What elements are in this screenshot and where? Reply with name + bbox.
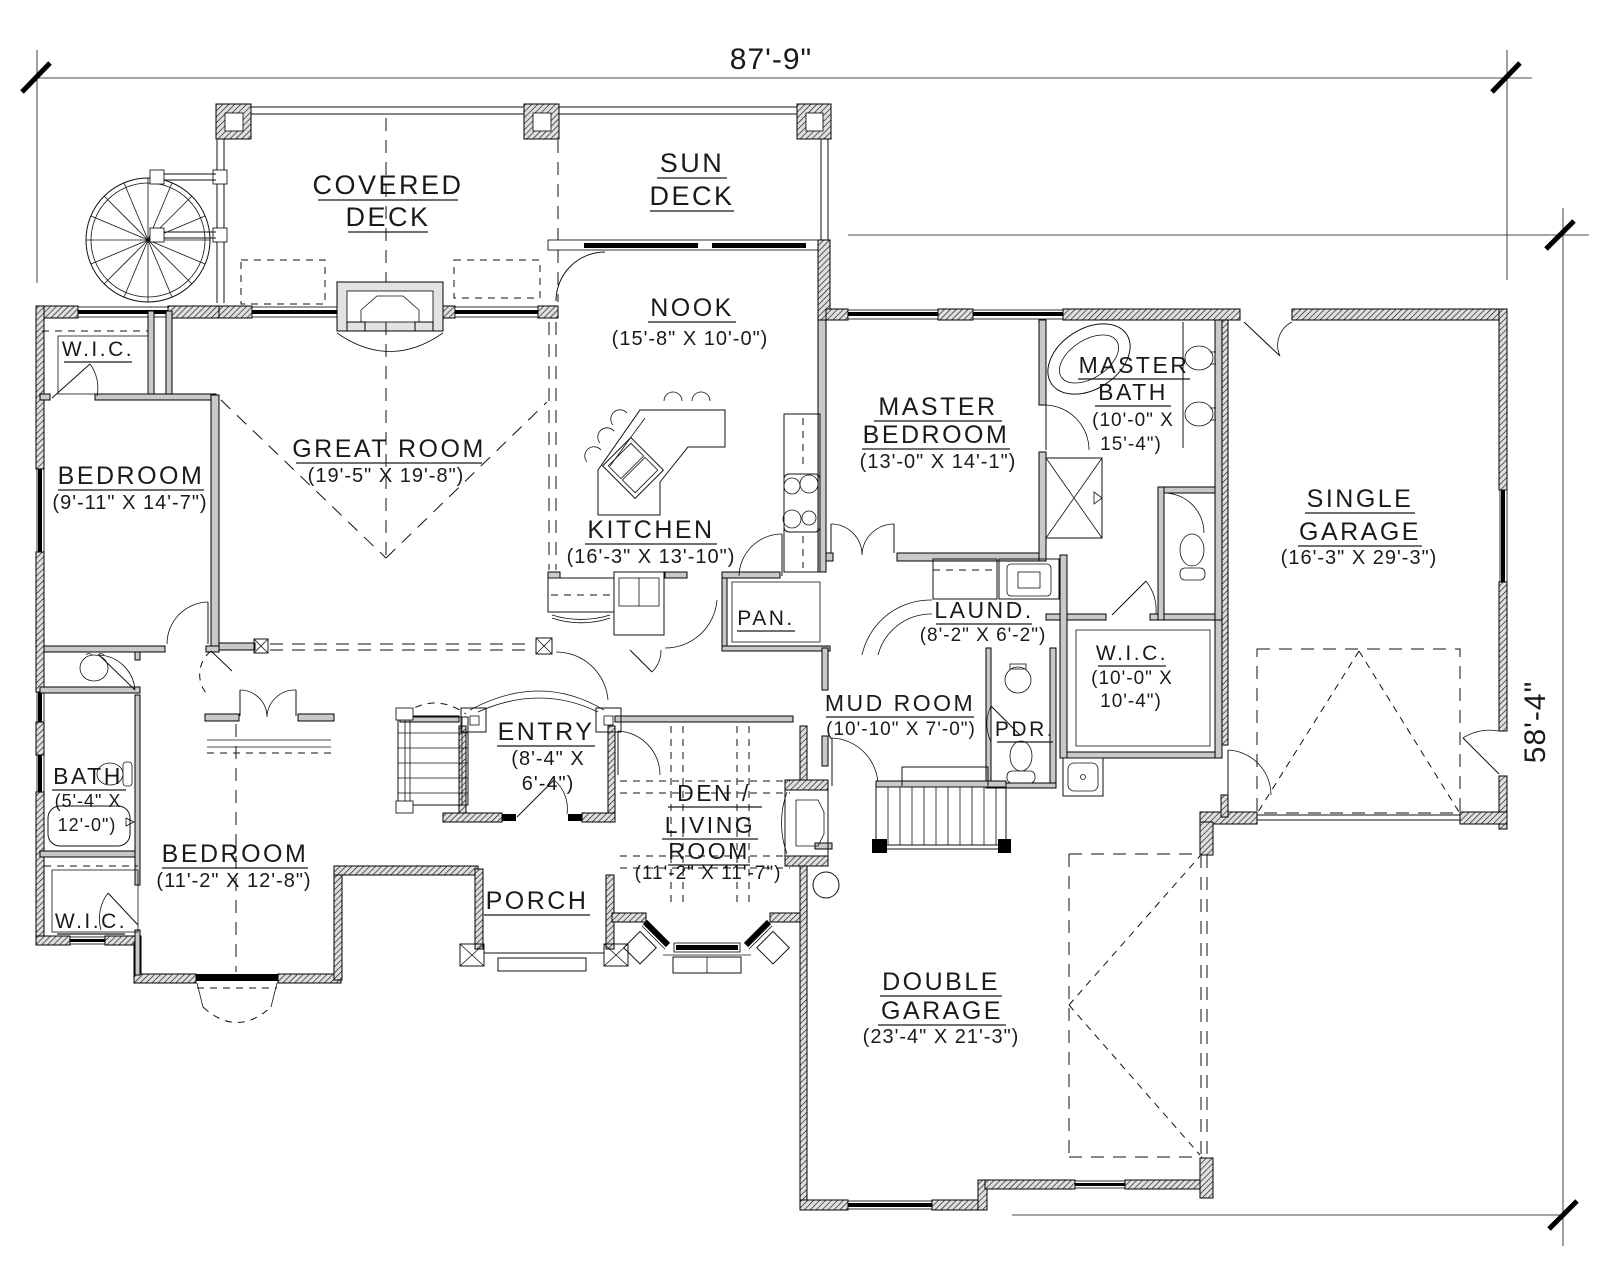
svg-text:ENTRY: ENTRY: [498, 718, 595, 746]
svg-text:(10'-0" X: (10'-0" X: [1091, 668, 1173, 689]
svg-text:DECK: DECK: [345, 202, 430, 232]
svg-text:(9'-11" X 14'-7"): (9'-11" X 14'-7"): [52, 492, 207, 514]
svg-text:(19'-5" X 19'-8"): (19'-5" X 19'-8"): [308, 465, 465, 487]
svg-text:10'-4"): 10'-4"): [1100, 691, 1162, 712]
svg-text:(16'-3" X 29'-3"): (16'-3" X 29'-3"): [1281, 547, 1438, 569]
svg-text:87'-9": 87'-9": [730, 43, 812, 76]
svg-text:(10'-10" X 7'-0"): (10'-10" X 7'-0"): [826, 719, 976, 740]
svg-text:BEDROOM: BEDROOM: [162, 840, 309, 868]
svg-text:(16'-3" X 13'-10"): (16'-3" X 13'-10"): [567, 546, 736, 568]
svg-text:MASTER: MASTER: [878, 393, 997, 421]
svg-text:GREAT ROOM: GREAT ROOM: [292, 435, 486, 463]
svg-text:W.I.C.: W.I.C.: [55, 910, 127, 933]
svg-text:ROOM: ROOM: [668, 838, 750, 864]
svg-text:COVERED: COVERED: [312, 170, 463, 200]
svg-text:W.I.C.: W.I.C.: [62, 338, 134, 361]
svg-text:MASTER: MASTER: [1079, 352, 1190, 378]
svg-text:BATH: BATH: [1098, 379, 1168, 405]
svg-text:(8'-4" X: (8'-4" X: [511, 748, 584, 770]
svg-text:SINGLE: SINGLE: [1307, 485, 1414, 513]
svg-text:DECK: DECK: [649, 181, 734, 211]
svg-text:12'-0"): 12'-0"): [58, 815, 117, 835]
svg-text:(5'-4" X: (5'-4" X: [55, 791, 122, 811]
svg-text:(23'-4" X 21'-3"): (23'-4" X 21'-3"): [863, 1026, 1020, 1048]
svg-text:GARAGE: GARAGE: [1299, 518, 1421, 546]
svg-text:(13'-0" X 14'-1"): (13'-0" X 14'-1"): [860, 451, 1017, 473]
svg-text:KITCHEN: KITCHEN: [587, 516, 714, 544]
svg-text:(11'-2" X 11'-7"): (11'-2" X 11'-7"): [635, 863, 782, 884]
svg-text:W.I.C.: W.I.C.: [1096, 642, 1168, 665]
svg-text:BEDROOM: BEDROOM: [58, 462, 205, 490]
svg-text:PORCH: PORCH: [486, 887, 589, 915]
svg-text:NOOK: NOOK: [650, 294, 734, 322]
svg-text:(15'-8" X 10'-0"): (15'-8" X 10'-0"): [612, 328, 769, 350]
svg-text:(11'-2" X 12'-8"): (11'-2" X 12'-8"): [156, 870, 311, 892]
svg-text:BEDROOM: BEDROOM: [863, 421, 1010, 449]
svg-text:58'-4": 58'-4": [1519, 681, 1552, 763]
svg-text:PDR.: PDR.: [995, 718, 1055, 741]
svg-text:MUD ROOM: MUD ROOM: [825, 690, 975, 716]
svg-text:LAUND.: LAUND.: [934, 597, 1033, 623]
svg-text:(8'-2" X 6'-2"): (8'-2" X 6'-2"): [920, 625, 1047, 646]
svg-text:15'-4"): 15'-4"): [1100, 434, 1162, 455]
svg-text:GARAGE: GARAGE: [881, 997, 1003, 1025]
svg-text:6'-4"): 6'-4"): [522, 773, 574, 795]
svg-text:SUN: SUN: [660, 148, 725, 178]
svg-text:PAN.: PAN.: [737, 607, 794, 630]
svg-text:DOUBLE: DOUBLE: [882, 968, 1000, 996]
svg-text:(10'-0" X: (10'-0" X: [1092, 410, 1174, 431]
svg-text:LIVING: LIVING: [665, 812, 755, 838]
